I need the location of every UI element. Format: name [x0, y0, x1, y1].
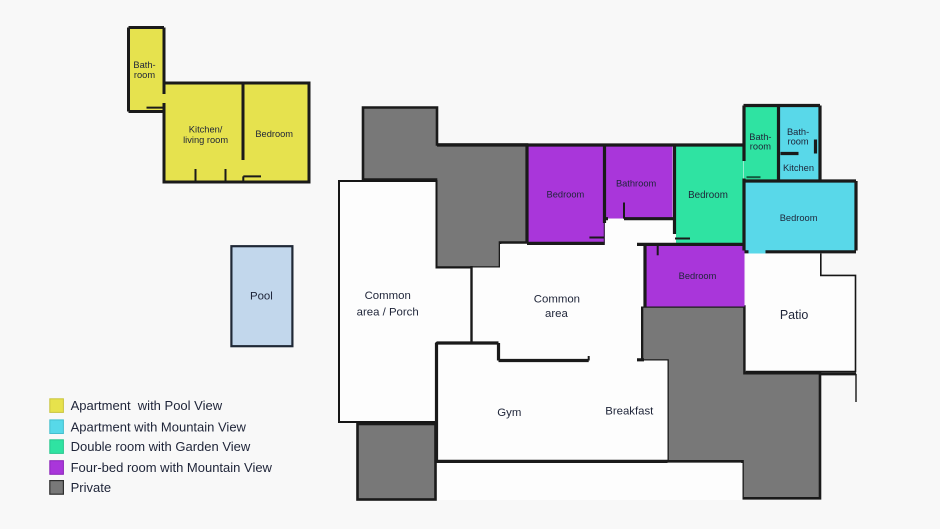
- svg-text:Bath-: Bath-: [133, 60, 155, 70]
- svg-text:Bedroom: Bedroom: [780, 213, 818, 223]
- svg-text:Bedroom: Bedroom: [547, 189, 585, 199]
- svg-text:living room: living room: [183, 135, 228, 145]
- svg-text:Pool: Pool: [250, 291, 273, 303]
- svg-text:Bedroom: Bedroom: [255, 129, 293, 139]
- svg-text:area: area: [545, 308, 568, 320]
- svg-text:Four-bed room with Mountain Vi: Four-bed room with Mountain View: [71, 460, 273, 475]
- svg-text:room: room: [134, 70, 155, 80]
- svg-text:Common: Common: [365, 290, 411, 302]
- svg-text:Breakfast: Breakfast: [605, 406, 654, 418]
- svg-text:Common: Common: [534, 293, 580, 305]
- svg-text:area / Porch: area / Porch: [357, 306, 419, 318]
- svg-text:Bathroom: Bathroom: [616, 178, 657, 188]
- svg-text:Kitchen/: Kitchen/: [189, 125, 223, 135]
- svg-text:Apartment with Mountain View: Apartment with Mountain View: [71, 419, 247, 434]
- svg-text:Apartment with Pool View: Apartment with Pool View: [71, 398, 223, 413]
- svg-text:room: room: [750, 142, 771, 152]
- svg-text:Double room with Garden View: Double room with Garden View: [71, 439, 251, 454]
- svg-text:Bedroom: Bedroom: [688, 190, 728, 201]
- svg-text:Gym: Gym: [497, 407, 521, 419]
- svg-text:Patio: Patio: [780, 308, 809, 322]
- svg-text:Bedroom: Bedroom: [679, 271, 717, 281]
- svg-text:room: room: [788, 136, 809, 146]
- svg-text:Bath-: Bath-: [749, 132, 771, 142]
- svg-text:Kitchen: Kitchen: [783, 163, 814, 173]
- svg-text:Private: Private: [71, 480, 111, 495]
